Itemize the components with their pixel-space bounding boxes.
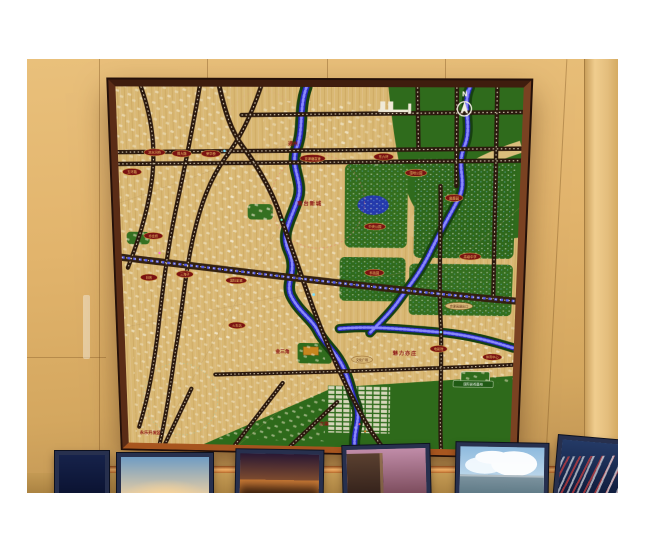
svg-text:高级中学: 高级中学 xyxy=(464,254,478,259)
svg-text:文化广场: 文化广场 xyxy=(356,357,368,362)
svg-text:凉水河桥: 凉水河桥 xyxy=(148,150,162,155)
svg-text:中央公园: 中央公园 xyxy=(368,224,382,229)
svg-text:京津塘高速: 京津塘高速 xyxy=(305,156,322,161)
svg-text:国际影城: 国际影城 xyxy=(230,278,243,283)
place-label: 金三角 xyxy=(274,348,289,355)
place-label: 南台新城 xyxy=(297,200,322,208)
poster-dusk-street xyxy=(342,444,430,493)
svg-text:京津高速出口: 京津高速出口 xyxy=(450,303,469,308)
poster-highway-trails xyxy=(553,435,618,493)
svg-text:三海子: 三海子 xyxy=(180,272,190,277)
green-sign-label: 国际影视基地 xyxy=(453,380,493,387)
poster-image xyxy=(121,457,209,493)
svg-text:荣华桥: 荣华桥 xyxy=(206,151,216,156)
wall-corner-pillar xyxy=(584,59,618,493)
svg-text:博大路: 博大路 xyxy=(177,151,187,156)
svg-text:电影院: 电影院 xyxy=(434,346,444,351)
svg-text:体育中心: 体育中心 xyxy=(486,355,499,360)
poster-city-night xyxy=(236,449,324,493)
poster-image xyxy=(240,453,320,493)
svg-text:火车站: 火车站 xyxy=(232,323,242,328)
photo-of-city-planning-model: N 通州 南台新城 金三角 魅力亦庄 次渠 永乐开发区 凉水河桥 博大路 荣华桥… xyxy=(0,0,645,550)
wall-seam xyxy=(99,59,100,493)
svg-text:麋鹿园: 麋鹿园 xyxy=(449,195,460,200)
wall-reflection xyxy=(83,295,90,359)
place-label: 次渠 xyxy=(319,421,329,427)
place-label: 通州 xyxy=(288,140,298,147)
svg-text:五环路: 五环路 xyxy=(127,169,137,174)
poster-image xyxy=(59,455,105,493)
svg-text:国际影视基地: 国际影视基地 xyxy=(463,382,483,387)
svg-text:东六环: 东六环 xyxy=(379,154,389,159)
poster-image xyxy=(558,439,618,493)
svg-text:湿地公园: 湿地公园 xyxy=(409,170,423,175)
exhibition-wall: N 通州 南台新城 金三角 魅力亦庄 次渠 永乐开发区 凉水河桥 博大路 荣华桥… xyxy=(27,59,618,493)
wall-seam xyxy=(544,59,568,492)
poster-night-waterfront xyxy=(55,451,109,493)
city-model-map-frame: N 通州 南台新城 金三角 魅力亦庄 次渠 永乐开发区 凉水河桥 博大路 荣华桥… xyxy=(108,79,531,456)
wall-seam xyxy=(27,357,106,358)
svg-text:N: N xyxy=(462,90,468,98)
poster-image xyxy=(460,446,545,493)
city-model-map: N 通州 南台新城 金三角 魅力亦庄 次渠 永乐开发区 凉水河桥 博大路 荣华桥… xyxy=(115,86,523,450)
svg-text:科技园: 科技园 xyxy=(370,270,380,275)
poster-sky-skyline xyxy=(456,442,549,493)
svg-text:亦庄桥: 亦庄桥 xyxy=(149,233,159,238)
svg-text:旧宫: 旧宫 xyxy=(146,275,153,280)
poster-image xyxy=(346,448,426,493)
poster-sunset-horizon xyxy=(117,453,213,493)
